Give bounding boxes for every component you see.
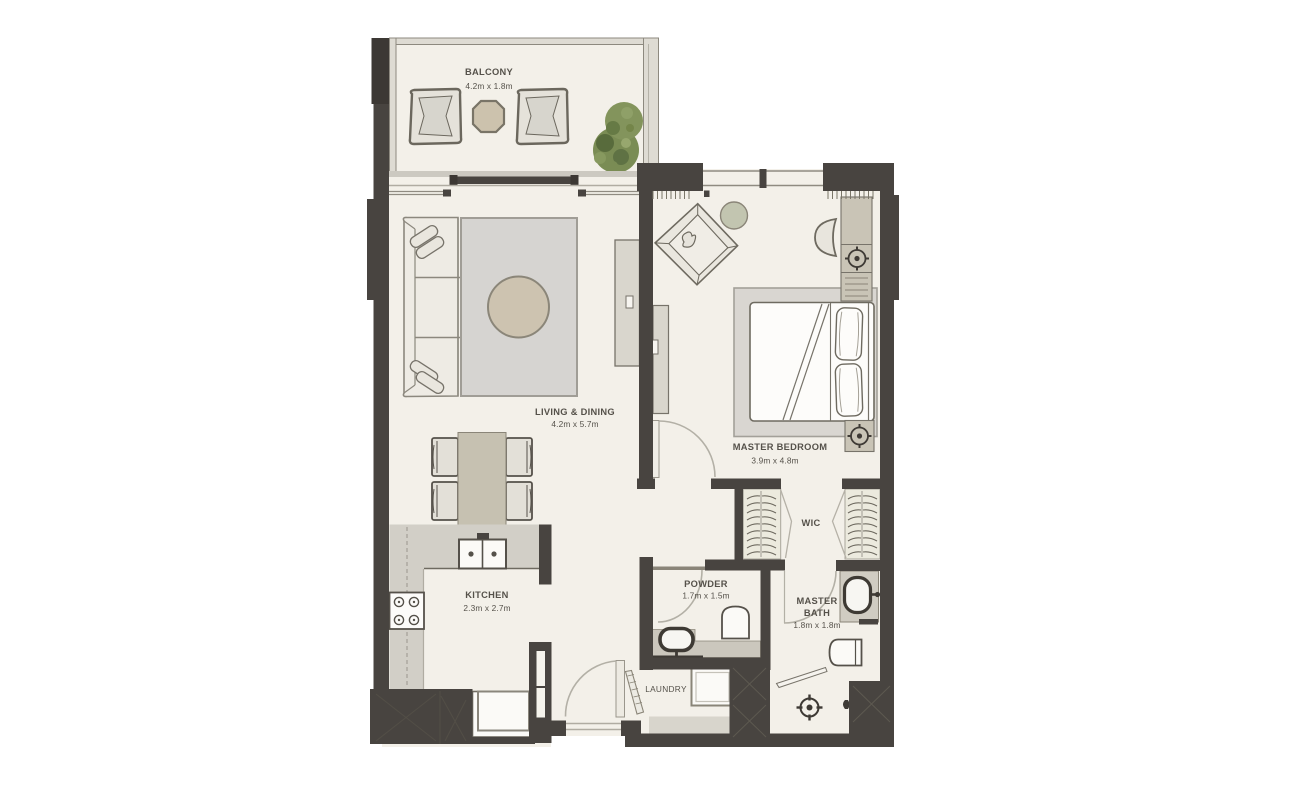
svg-text:LAUNDRY: LAUNDRY (645, 684, 687, 694)
svg-text:4.2m x 1.8m: 4.2m x 1.8m (465, 81, 512, 91)
svg-text:1.7m x 1.5m: 1.7m x 1.5m (682, 591, 729, 601)
svg-text:4.2m x 5.7m: 4.2m x 5.7m (551, 419, 598, 429)
svg-text:WIC: WIC (802, 518, 821, 528)
svg-text:MASTER BEDROOM: MASTER BEDROOM (733, 442, 828, 452)
svg-text:3.9m x 4.8m: 3.9m x 4.8m (751, 456, 798, 466)
svg-text:2.3m x 2.7m: 2.3m x 2.7m (463, 603, 510, 613)
svg-text:KITCHEN: KITCHEN (465, 590, 508, 600)
svg-text:LIVING & DINING: LIVING & DINING (535, 407, 615, 417)
svg-text:POWDER: POWDER (684, 579, 728, 589)
svg-text:BATH: BATH (804, 608, 830, 618)
svg-text:1.8m x 1.8m: 1.8m x 1.8m (793, 620, 840, 630)
svg-text:BALCONY: BALCONY (465, 67, 514, 77)
svg-text:MASTER: MASTER (796, 596, 837, 606)
